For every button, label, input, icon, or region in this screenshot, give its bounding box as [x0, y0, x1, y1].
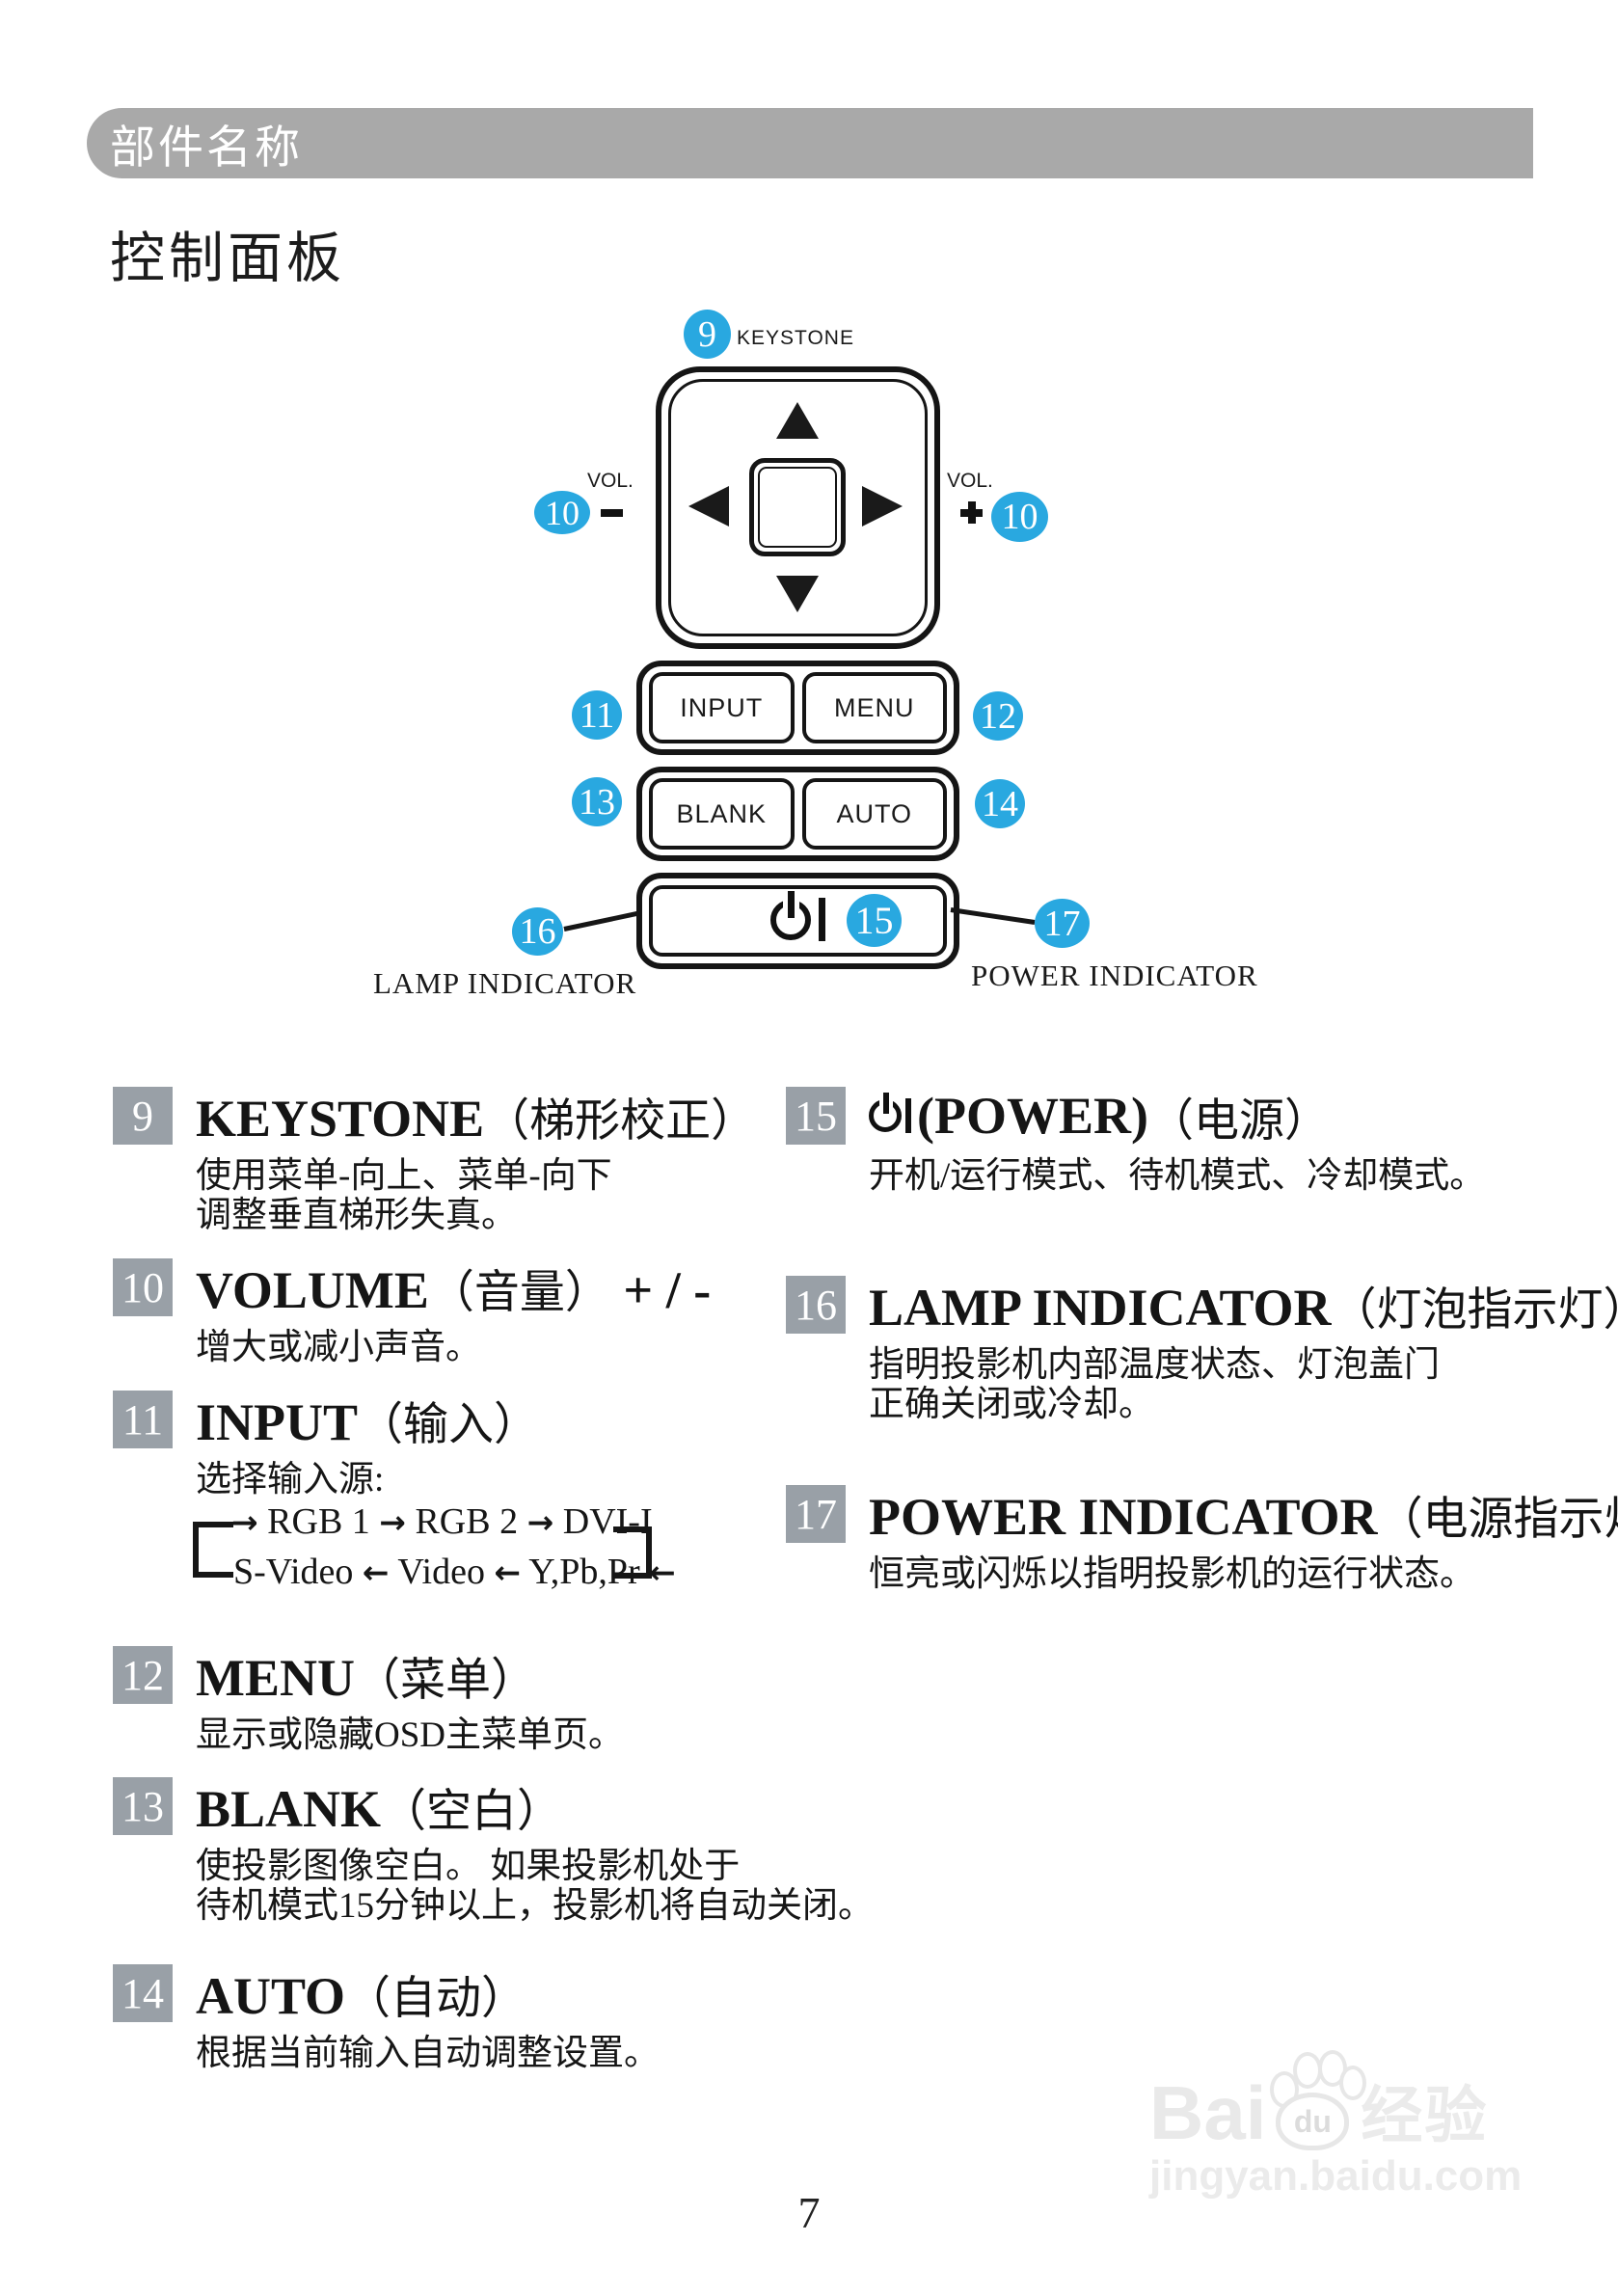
- power-icon: [869, 1099, 902, 1132]
- item-12-name-cn: （菜单）: [355, 1656, 536, 1706]
- keystone-label: KEYSTONE: [737, 327, 854, 350]
- cycle-source: DVI-I: [563, 1501, 653, 1542]
- callout-14-badge: 14: [975, 779, 1025, 828]
- cycle-source: S-Video: [233, 1552, 353, 1592]
- item-17-name-cn: （电源指示灯）: [1378, 1495, 1618, 1545]
- arrow-down-icon[interactable]: [776, 576, 819, 612]
- cycle-arrow-icon: ←: [494, 1553, 521, 1591]
- cycle-arrow-icon: →: [379, 1503, 406, 1541]
- item-13-name-cn: （空白）: [381, 1787, 562, 1837]
- arrow-up-icon[interactable]: [776, 402, 819, 439]
- section-header-title: 部件名称: [110, 110, 303, 176]
- item-15-name-cn: （电源）: [1148, 1083, 1330, 1149]
- item-9-number: 9: [113, 1087, 173, 1145]
- item-10-volume: 10 VOLUME（音量） + / - 增大或减小声音。: [113, 1258, 711, 1367]
- item-13-number: 13: [113, 1777, 173, 1835]
- item-14-desc-line: 根据当前输入自动调整设置。: [196, 2034, 660, 2073]
- item-17-number: 17: [786, 1485, 846, 1543]
- item-10-desc-line: 增大或减小声音。: [196, 1328, 711, 1367]
- callout-9-badge: 9: [684, 310, 731, 359]
- watermark-paw-text: du: [1276, 2093, 1349, 2150]
- minus-sign: [601, 509, 623, 517]
- item-14-auto: 14 AUTO（自动） 根据当前输入自动调整设置。: [113, 1964, 660, 2073]
- auto-button[interactable]: AUTO: [802, 778, 948, 850]
- item-13-desc-line: 使投影图像空白。 如果投影机处于: [196, 1847, 874, 1886]
- item-16-desc-line: 指明投影机内部温度状态、灯泡盖门: [869, 1345, 1618, 1385]
- item-16-desc-line: 正确关闭或冷却。: [869, 1385, 1618, 1424]
- cycle-source: RGB 1: [267, 1501, 370, 1542]
- cycle-bottom-row: S-Video ← Video ← Y,Pb,Pr ←: [233, 1551, 676, 1593]
- item-14-name-cn: （自动）: [345, 1974, 526, 2024]
- item-17-name: POWER INDICATOR: [869, 1488, 1378, 1546]
- arrow-left-icon[interactable]: [688, 486, 729, 527]
- baidu-paw-icon: du: [1268, 2050, 1361, 2147]
- watermark-url: jingyan.baidu.com: [1149, 2152, 1522, 2201]
- cycle-source: Video: [397, 1552, 485, 1592]
- item-16-number: 16: [786, 1276, 846, 1334]
- power-indicator-label: POWER INDICATOR: [971, 959, 1258, 993]
- menu-button[interactable]: MENU: [802, 672, 948, 743]
- item-9-desc-line: 调整垂直梯形失真。: [196, 1196, 756, 1235]
- cycle-source: Y,Pb,Pr: [528, 1552, 639, 1592]
- item-11-name: INPUT: [196, 1393, 358, 1451]
- item-17-desc-line: 恒亮或闪烁以指明投影机的运行状态。: [869, 1554, 1618, 1594]
- button-row-blank-auto: BLANK AUTO: [636, 767, 959, 861]
- callout-11-badge: 11: [572, 690, 622, 740]
- cycle-arrow-icon: →: [527, 1503, 554, 1541]
- callout-10-right-badge: 10: [991, 492, 1048, 542]
- item-9-name-cn: （梯形校正）: [484, 1096, 756, 1147]
- callout-12-badge: 12: [973, 691, 1023, 741]
- section-header-bar: 部件名称: [87, 108, 1533, 178]
- item-13-name: BLANK: [196, 1780, 381, 1838]
- item-12-number: 12: [113, 1646, 173, 1704]
- item-15-power: 15 (POWER)（电源） 开机/运行模式、待机模式、冷却模式。: [786, 1087, 1485, 1196]
- cycle-arrow-icon: ←: [649, 1553, 676, 1591]
- item-9-keystone: 9 KEYSTONE（梯形校正） 使用菜单-向上、菜单-向下 调整垂直梯形失真。: [113, 1087, 756, 1235]
- power-icon: [770, 900, 811, 940]
- watermark-brand-cn: 经验: [1361, 2085, 1488, 2147]
- item-11-number: 11: [113, 1391, 173, 1448]
- button-row-input-menu: INPUT MENU: [636, 661, 959, 755]
- callout-15-badge: 15: [847, 894, 902, 947]
- item-17-power-indicator: 17 POWER INDICATOR（电源指示灯） 恒亮或闪烁以指明投影机的运行…: [786, 1485, 1618, 1594]
- item-11-input: 11 INPUT（输入） 选择输入源:: [113, 1391, 539, 1499]
- item-13-desc-line: 待机模式15分钟以上，投影机将自动关闭。: [196, 1886, 874, 1926]
- vol-left-label: VOL.: [587, 470, 634, 493]
- arrow-right-icon[interactable]: [862, 486, 903, 527]
- item-15-name: (POWER): [917, 1086, 1148, 1146]
- cycle-top-row: → RGB 1 → RGB 2 → DVI-I: [231, 1500, 653, 1543]
- item-16-lamp-indicator: 16 LAMP INDICATOR（灯泡指示灯） 指明投影机内部温度状态、灯泡盖…: [786, 1276, 1618, 1424]
- item-14-number: 14: [113, 1964, 173, 2022]
- plus-sign-vertical: [968, 501, 976, 524]
- cycle-arrow-icon: ←: [363, 1553, 390, 1591]
- item-16-name: LAMP INDICATOR: [869, 1279, 1332, 1337]
- item-15-number: 15: [786, 1087, 846, 1145]
- item-10-name: VOLUME: [196, 1261, 429, 1319]
- cycle-source: RGB 2: [415, 1501, 518, 1542]
- watermark-brand-text: Bai: [1149, 2079, 1266, 2147]
- page-title: 控制面板: [110, 214, 345, 293]
- input-button[interactable]: INPUT: [649, 672, 795, 743]
- vol-right-label: VOL.: [947, 470, 993, 493]
- item-12-name: MENU: [196, 1649, 355, 1707]
- callout-10-left-badge: 10: [534, 491, 590, 534]
- item-15-desc-line: 开机/运行模式、待机模式、冷却模式。: [869, 1156, 1485, 1196]
- item-12-menu: 12 MENU（菜单） 显示或隐藏OSD主菜单页。: [113, 1646, 624, 1755]
- lamp-indicator-leader-line: [563, 911, 638, 932]
- item-11-name-cn: （输入）: [358, 1400, 539, 1450]
- manual-page: 部件名称 控制面板 9 KEYSTONE VOL. 10 VOL. 10 INP…: [0, 0, 1618, 2296]
- callout-13-badge: 13: [572, 777, 622, 826]
- item-10-suffix: + / -: [623, 1261, 711, 1319]
- callout-16-badge: 16: [512, 907, 563, 956]
- item-9-desc-line: 使用菜单-向上、菜单-向下: [196, 1156, 756, 1196]
- cycle-left-bracket: [193, 1522, 233, 1578]
- item-10-name-cn: （音量）: [429, 1268, 610, 1318]
- baidu-jingyan-watermark: Bai du 经验 jingyan.baidu.com: [1149, 2050, 1522, 2201]
- item-11-desc-line: 选择输入源:: [196, 1460, 539, 1499]
- power-indicator-leader-line: [951, 907, 1036, 925]
- item-10-number: 10: [113, 1258, 173, 1316]
- item-9-name: KEYSTONE: [196, 1090, 484, 1148]
- item-12-desc-line: 显示或隐藏OSD主菜单页。: [196, 1715, 624, 1755]
- lamp-indicator-label: LAMP INDICATOR: [373, 966, 636, 1001]
- item-14-name: AUTO: [196, 1967, 345, 2025]
- callout-17-badge: 17: [1035, 899, 1090, 948]
- blank-button[interactable]: BLANK: [649, 778, 795, 850]
- item-16-name-cn: （灯泡指示灯）: [1332, 1285, 1618, 1336]
- keypad-center-key[interactable]: [749, 458, 846, 556]
- keypad-center-key-line: [758, 467, 837, 548]
- standby-bar-icon: [905, 1098, 911, 1133]
- standby-bar-icon: [819, 898, 825, 941]
- cycle-arrow-icon: →: [231, 1503, 258, 1541]
- item-13-blank: 13 BLANK（空白） 使投影图像空白。 如果投影机处于 待机模式15分钟以上…: [113, 1777, 874, 1926]
